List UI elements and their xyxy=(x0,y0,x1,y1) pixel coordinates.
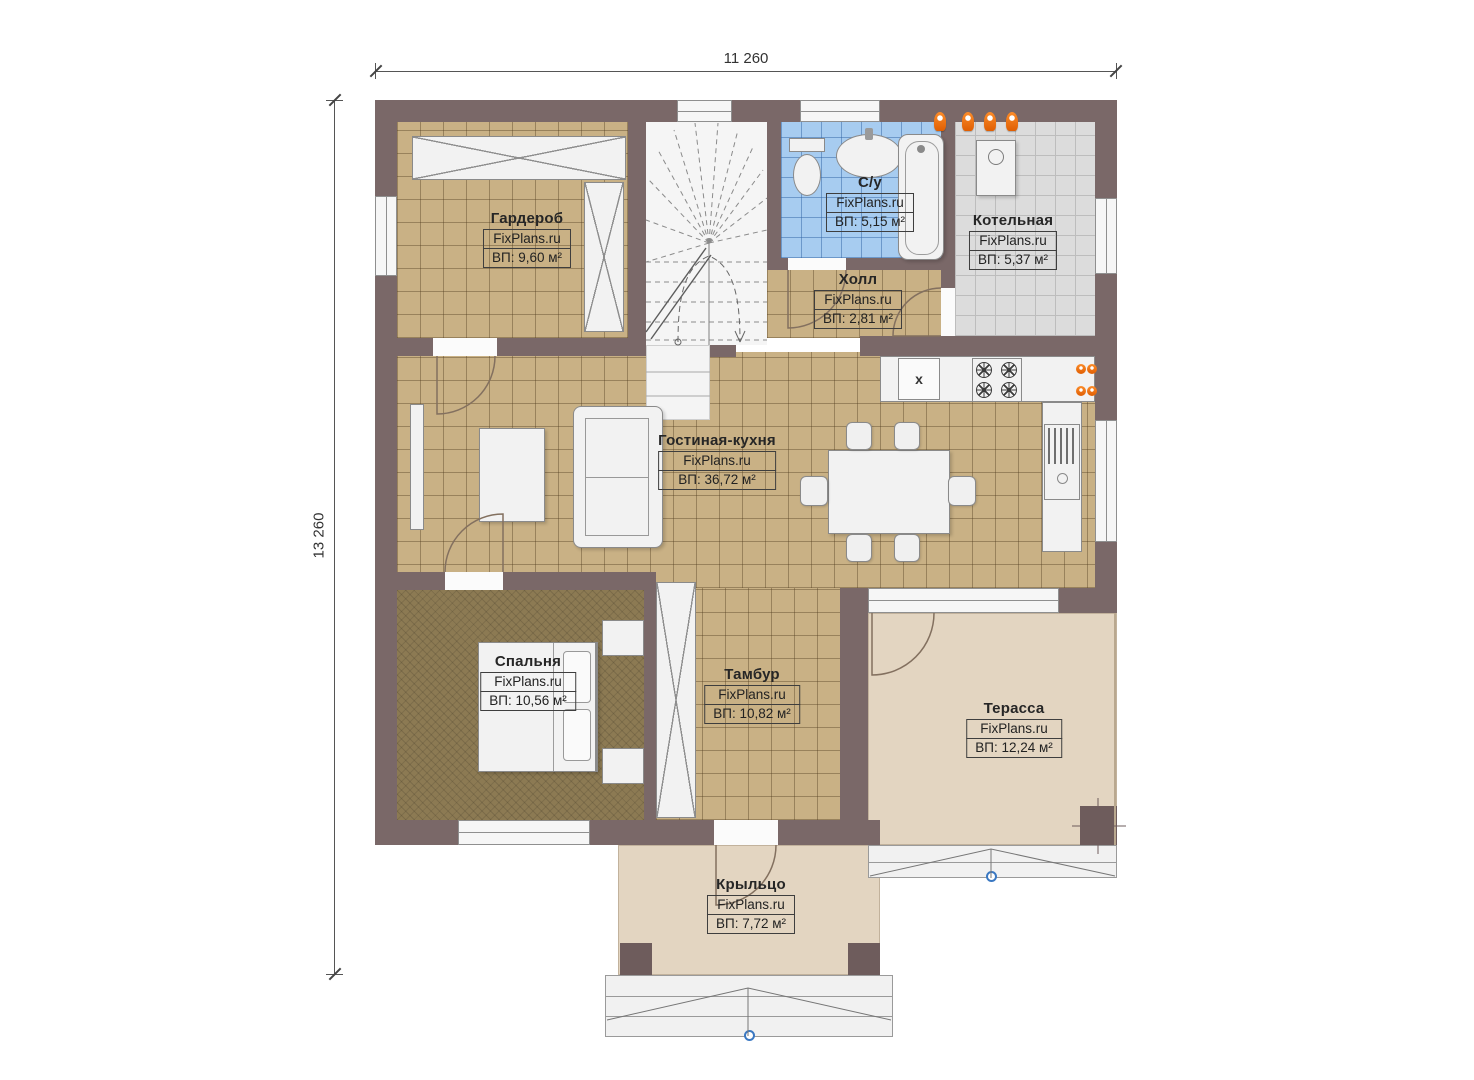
watermark: FixPlans.ru xyxy=(658,451,776,471)
radiator-icon xyxy=(1006,112,1018,131)
chair xyxy=(800,476,828,506)
room-name: Спальня xyxy=(480,653,576,670)
room-label-porch: Крыльцо FixPlans.ru ВП: 7,72 м² xyxy=(707,876,795,934)
room-name: Гостиная-кухня xyxy=(658,432,776,449)
burner-icon xyxy=(976,362,992,378)
wall-bathroom-west xyxy=(767,122,781,270)
wall-stair-stub xyxy=(710,345,736,357)
kitchen-sink: x xyxy=(898,358,940,400)
room-name: Тамбур xyxy=(704,666,800,683)
window-east-kitchen xyxy=(1095,420,1117,542)
window-north-stairs xyxy=(677,100,732,122)
chair xyxy=(846,422,872,450)
burner-icon xyxy=(976,382,992,398)
dining-table xyxy=(828,450,950,534)
left-dimension-line xyxy=(334,100,335,975)
wall-garderob-stairs xyxy=(628,122,646,346)
porch-steps xyxy=(605,975,893,1037)
room-name: Холл xyxy=(814,271,902,288)
room-label-garderob: Гардероб FixPlans.ru ВП: 9,60 м² xyxy=(483,210,571,268)
top-dimension-line xyxy=(375,71,1117,72)
radiator-icon xyxy=(1087,386,1097,396)
room-label-bathroom: С/у FixPlans.ru ВП: 5,15 м² xyxy=(826,174,914,232)
wall-tambour-east xyxy=(840,588,868,845)
watermark: FixPlans.ru xyxy=(707,895,795,915)
chair xyxy=(894,534,920,562)
tv-bench xyxy=(410,404,424,530)
porch-step-marker-icon xyxy=(744,1030,755,1041)
room-area: ВП: 9,60 м² xyxy=(483,248,571,268)
kitchen-sink-symbol: x xyxy=(915,371,923,387)
pillow xyxy=(563,709,591,761)
window-south-bedroom xyxy=(458,820,590,845)
room-area: ВП: 2,81 м² xyxy=(814,309,902,329)
room-area: ВП: 12,24 м² xyxy=(966,738,1062,758)
room-area: ВП: 36,72 м² xyxy=(658,470,776,490)
wall-kitchen-north xyxy=(860,336,1095,356)
wall-south xyxy=(375,820,880,845)
watermark: FixPlans.ru xyxy=(814,290,902,310)
window-west-garderob xyxy=(375,196,397,276)
room-label-tambour: Тамбур FixPlans.ru ВП: 10,82 м² xyxy=(704,666,800,724)
watermark: FixPlans.ru xyxy=(969,231,1057,251)
floor-staircase xyxy=(646,122,767,345)
boiler-unit xyxy=(976,140,1016,196)
window-north-bathroom xyxy=(800,100,880,122)
room-name: Терасса xyxy=(966,700,1062,717)
wardrobe-cabinet-top xyxy=(412,136,626,180)
watermark: FixPlans.ru xyxy=(480,672,576,692)
room-area: ВП: 5,37 м² xyxy=(969,250,1057,270)
burner-icon xyxy=(1001,362,1017,378)
watermark: FixPlans.ru xyxy=(966,719,1062,739)
wardrobe-cabinet-right xyxy=(584,182,624,332)
boiler-dial-icon xyxy=(988,149,1004,165)
chair xyxy=(894,422,920,450)
left-dimension-label: 13 260 xyxy=(310,513,327,559)
toilet xyxy=(793,154,821,196)
terrace-edge xyxy=(1114,613,1116,845)
radiator-icon xyxy=(1076,386,1086,396)
room-area: ВП: 7,72 м² xyxy=(707,914,795,934)
closet-cabinet xyxy=(656,582,696,818)
coffee-table xyxy=(479,428,545,522)
room-label-boiler: Котельная FixPlans.ru ВП: 5,37 м² xyxy=(969,212,1057,270)
burner-icon xyxy=(1001,382,1017,398)
room-name: С/у xyxy=(826,174,914,191)
door-opening-garderob xyxy=(433,338,497,356)
radiator-icon xyxy=(934,112,946,131)
window-east-boiler xyxy=(1095,198,1117,274)
washbasin xyxy=(836,134,902,178)
top-dimension-label: 11 260 xyxy=(724,50,769,67)
watermark: FixPlans.ru xyxy=(826,193,914,213)
toilet-tank xyxy=(789,138,825,152)
nightstand xyxy=(602,748,644,784)
terrace-sliding-door xyxy=(868,588,1059,613)
wall-bedroom-east xyxy=(644,572,656,822)
watermark: FixPlans.ru xyxy=(704,685,800,705)
door-opening-bathroom xyxy=(788,258,846,270)
door-opening-entrance xyxy=(714,820,778,845)
wall-bedroom-north xyxy=(397,572,644,590)
porch-pillar-right xyxy=(848,943,880,975)
wall-terrace-north-stub xyxy=(1059,588,1117,613)
door-opening-boiler xyxy=(941,288,955,336)
room-name: Крыльцо xyxy=(707,876,795,893)
porch-pillar-left xyxy=(620,943,652,975)
radiator-icon xyxy=(1076,364,1086,374)
nightstand xyxy=(602,620,644,656)
chair xyxy=(948,476,976,506)
terrace-pillar xyxy=(1080,806,1117,845)
fridge-handle-icon xyxy=(1057,473,1068,484)
radiator-icon xyxy=(962,112,974,131)
room-name: Котельная xyxy=(969,212,1057,229)
room-area: ВП: 5,15 м² xyxy=(826,212,914,232)
door-opening-bedroom xyxy=(445,572,503,590)
fridge-grill-icon xyxy=(1048,428,1076,464)
fridge xyxy=(1044,424,1080,500)
chair xyxy=(846,534,872,562)
sofa xyxy=(573,406,663,548)
washbasin-faucet-icon xyxy=(865,128,873,140)
terrace-step-marker-icon xyxy=(986,871,997,882)
room-label-living-kitchen: Гостиная-кухня FixPlans.ru ВП: 36,72 м² xyxy=(658,432,776,490)
watermark: FixPlans.ru xyxy=(483,229,571,249)
stove xyxy=(972,358,1022,402)
room-label-hall: Холл FixPlans.ru ВП: 2,81 м² xyxy=(814,271,902,329)
room-area: ВП: 10,82 м² xyxy=(704,704,800,724)
radiator-icon xyxy=(984,112,996,131)
room-name: Гардероб xyxy=(483,210,571,227)
bathtub-drain-icon xyxy=(917,145,925,153)
room-label-terrace: Терасса FixPlans.ru ВП: 12,24 м² xyxy=(966,700,1062,758)
sofa-cushions xyxy=(585,418,649,536)
radiator-icon xyxy=(1087,364,1097,374)
room-label-bedroom: Спальня FixPlans.ru ВП: 10,56 м² xyxy=(480,653,576,711)
room-area: ВП: 10,56 м² xyxy=(480,691,576,711)
floor-plan-canvas: 11 260 13 260 xyxy=(0,0,1474,1080)
